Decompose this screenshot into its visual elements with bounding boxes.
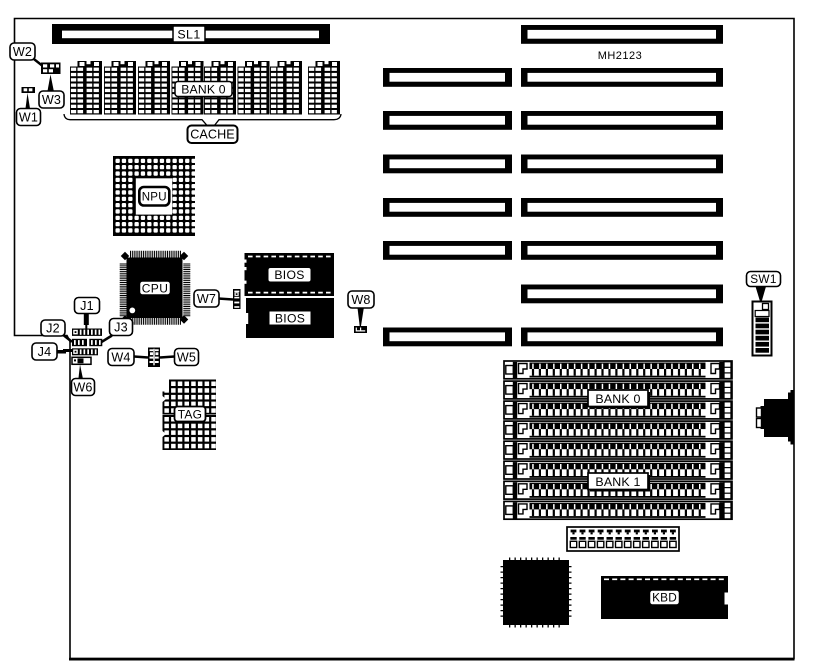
svg-text:J3: J3 [114,321,128,335]
svg-text:SW1: SW1 [750,272,776,286]
svg-text:BANK 0: BANK 0 [595,392,640,406]
svg-text:TAG: TAG [178,407,202,421]
svg-text:BIOS: BIOS [274,268,304,282]
svg-text:W4: W4 [111,351,130,365]
svg-text:NPU: NPU [142,192,167,204]
svg-text:W5: W5 [177,351,196,365]
svg-text:KBD: KBD [652,591,677,605]
svg-text:W3: W3 [42,93,61,107]
svg-text:SL1: SL1 [177,27,200,41]
svg-text:W2: W2 [13,45,32,59]
svg-text:W1: W1 [19,111,38,125]
svg-text:CPU: CPU [142,281,169,295]
svg-text:CACHE: CACHE [190,128,235,142]
svg-text:MH2123: MH2123 [598,50,643,62]
svg-text:W6: W6 [73,381,92,395]
svg-text:BANK 0: BANK 0 [181,82,226,96]
svg-text:J1: J1 [80,299,94,313]
svg-text:W8: W8 [351,293,370,307]
svg-text:BIOS: BIOS [275,311,305,325]
svg-text:J2: J2 [46,322,60,336]
svg-text:J4: J4 [38,345,52,359]
svg-text:W7: W7 [197,292,216,306]
svg-text:BANK 1: BANK 1 [595,475,640,489]
